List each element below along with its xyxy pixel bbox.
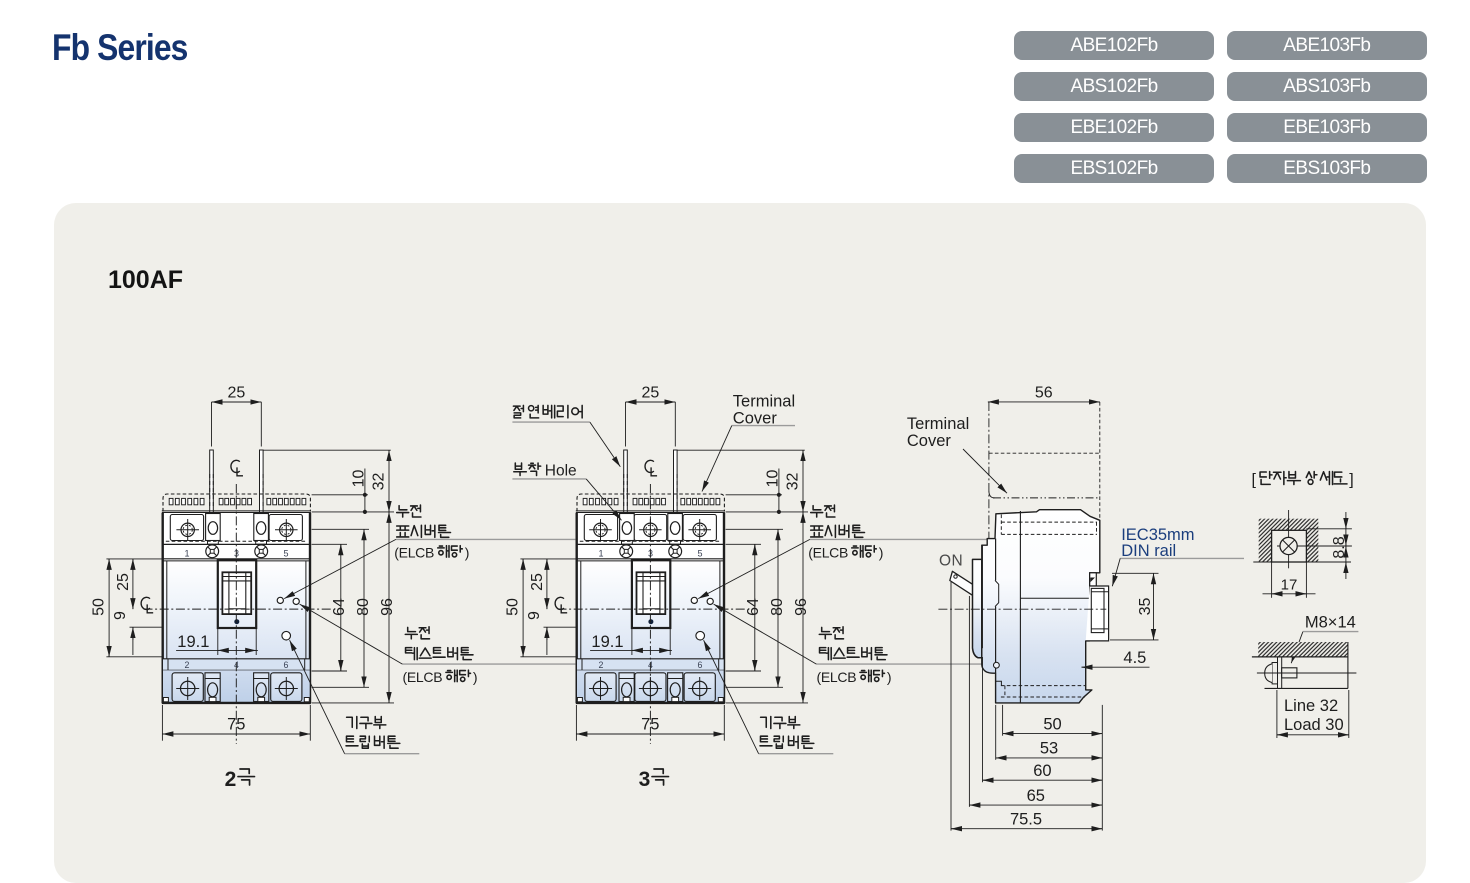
svg-text:Hole: Hole [545,462,577,479]
svg-text:25: 25 [228,385,246,402]
svg-text:8.8: 8.8 [1331,536,1348,558]
svg-text:65: 65 [1027,787,1045,805]
svg-text:10: 10 [351,470,368,488]
svg-text:32: 32 [785,473,802,491]
svg-text:96: 96 [793,598,810,616]
svg-text:50: 50 [1043,715,1061,733]
svg-text:5: 5 [697,549,702,559]
svg-text:19.1: 19.1 [591,633,623,651]
svg-text:64: 64 [745,598,762,616]
svg-text:60: 60 [1033,762,1051,780]
svg-text:50: 50 [90,598,107,616]
svg-text:25: 25 [529,573,546,591]
svg-text:6: 6 [284,660,289,670]
svg-text:(ELCB: (ELCB [403,669,443,685]
svg-text:25: 25 [642,385,660,402]
svg-text:Load 30: Load 30 [1284,716,1344,734]
svg-text:5: 5 [283,549,288,559]
svg-text:56: 56 [1035,385,1053,402]
svg-text:25: 25 [115,573,132,591]
svg-text:3: 3 [639,768,651,791]
svg-text:(ELCB: (ELCB [808,544,848,560]
svg-text:2: 2 [185,660,190,670]
svg-text:2: 2 [225,768,237,791]
svg-text:4.5: 4.5 [1123,649,1146,667]
svg-text:DIN rail: DIN rail [1121,542,1176,560]
svg-text:10: 10 [765,470,782,488]
svg-text:2: 2 [599,660,604,670]
svg-text:9: 9 [112,611,129,620]
svg-text:80: 80 [355,598,372,616]
svg-text:64: 64 [331,598,348,616]
svg-text:96: 96 [379,598,396,616]
svg-text:(ELCB: (ELCB [394,544,434,560]
svg-text:): ) [465,544,470,560]
svg-text:M8×14: M8×14 [1305,614,1356,632]
svg-text:17: 17 [1281,576,1298,593]
svg-text:Line 32: Line 32 [1284,697,1338,715]
svg-text:(ELCB: (ELCB [817,669,857,685]
svg-text:Terminal: Terminal [733,393,795,411]
svg-text:35: 35 [1137,598,1154,616]
svg-text:[: [ [1252,471,1257,488]
svg-text:50: 50 [504,598,521,616]
svg-text:Terminal: Terminal [907,415,969,433]
svg-text:1: 1 [598,549,603,559]
svg-text:]: ] [1349,471,1353,488]
svg-text:9: 9 [526,611,543,620]
svg-text:Cover: Cover [907,432,952,450]
svg-text:1: 1 [184,549,189,559]
svg-text:ON: ON [939,552,963,569]
svg-text:): ) [879,544,884,560]
svg-text:75.5: 75.5 [1010,811,1042,829]
svg-text:19.1: 19.1 [177,633,209,651]
svg-text:53: 53 [1040,740,1058,758]
svg-text:): ) [887,669,892,685]
svg-text:Cover: Cover [733,409,778,427]
svg-text:): ) [473,669,478,685]
svg-text:80: 80 [769,598,786,616]
svg-text:32: 32 [371,473,388,491]
svg-text:6: 6 [698,660,703,670]
